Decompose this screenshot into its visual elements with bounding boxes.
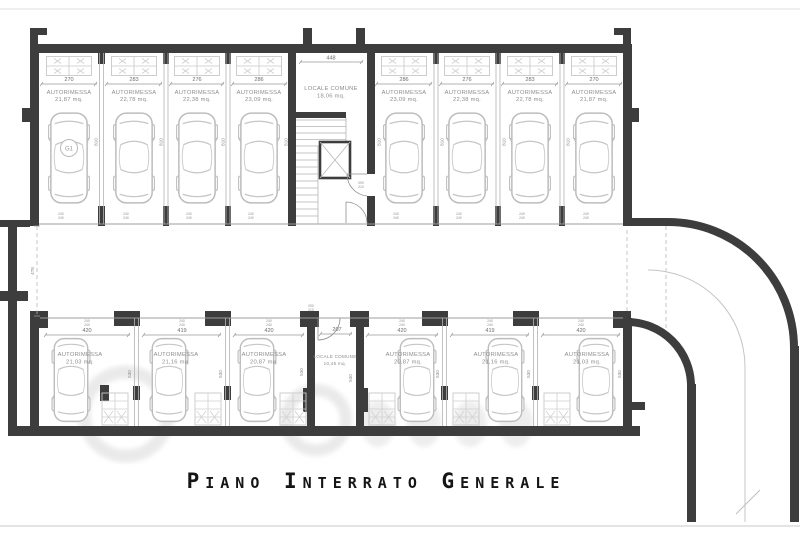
room-area: 18,06 mq.: [317, 94, 345, 100]
storage-rack-icon: [508, 57, 553, 76]
stall-depth-dim: 530: [299, 368, 304, 376]
stall-depth-dim: 530: [127, 370, 132, 378]
corridor-dim: 478: [30, 226, 40, 316]
stall-label: AUTORIMESSA: [58, 352, 103, 358]
car-icon: [573, 113, 615, 203]
stall-area: 23,09 mq.: [245, 97, 273, 103]
stall-label: AUTORIMESSA: [508, 90, 553, 96]
stall-area: 22,78 mq.: [516, 97, 544, 103]
stall-width-dim: 270: [64, 77, 73, 83]
stall-width-dim: 276: [462, 77, 471, 83]
stall-depth-dim: 530: [526, 370, 531, 378]
floorplan-page: 478 270 AUTORIMESSA 21,87 mq. G1 810 240…: [0, 0, 800, 535]
car-icon: [48, 113, 90, 203]
storage-rack-icon: [47, 57, 92, 76]
stall-top-2: 283 AUTORIMESSA 22,78 mq. 810 240 240: [105, 57, 164, 221]
stall-depth-dim: 810: [502, 138, 507, 146]
room-width-dim: 448: [326, 56, 335, 62]
ramp-slope-tick: [736, 490, 760, 514]
stall-width-dim: 419: [485, 328, 494, 334]
stall-depth-dim: 530: [218, 370, 223, 378]
stall-area: 21,87 mq.: [55, 97, 83, 103]
stall-top-3: 276 AUTORIMESSA 22,38 mq. 810 240 240: [169, 57, 226, 221]
page-frame: [0, 9, 800, 526]
storage-rack-icon: [237, 57, 282, 76]
stall-top-7: 283 AUTORIMESSA 22,78 mq. 810 240 240: [501, 57, 558, 221]
stall-width-dim: 420: [576, 328, 585, 334]
stall-depth-dim: 530: [617, 370, 622, 378]
stall-label: AUTORIMESSA: [572, 90, 617, 96]
stall-width-dim: 420: [82, 328, 91, 334]
opening-dim: 240: [123, 216, 129, 220]
opening-dim: 240: [179, 323, 185, 327]
stall-width-dim: 419: [177, 328, 186, 334]
stall-label: AUTORIMESSA: [237, 90, 282, 96]
room-width-dim: 207: [332, 327, 341, 333]
stall-label: AUTORIMESSA: [565, 352, 610, 358]
locale-comune-top: 448 LOCALE COMUNE 18,06 mq.: [299, 56, 363, 100]
stall-bottom-3: 420 AUTORIMESSA 20,87 mq. 530 240 240: [233, 319, 306, 425]
car-icon: [446, 113, 488, 203]
stall-width-dim: 420: [264, 328, 273, 334]
elevator: [320, 142, 350, 178]
room-label: LOCALE COMUNE: [304, 86, 358, 92]
stall-label: AUTORIMESSA: [474, 352, 519, 358]
stall-width-dim: 420: [397, 328, 406, 334]
stall-depth-dim: 530: [435, 370, 440, 378]
stall-depth-dim: 810: [440, 138, 445, 146]
stall-area: 21,03 mq.: [66, 360, 94, 366]
stall-area: 21,16 mq.: [162, 360, 190, 366]
room-depth-dim: 530: [348, 374, 353, 382]
opening-dim: 240: [393, 216, 399, 220]
car-badge: G1: [65, 147, 74, 153]
opening-dim: 240: [578, 323, 584, 327]
stall-bottom-4: 420 AUTORIMESSA 20,87 mq. 530 240 240: [366, 319, 440, 425]
storage-rack-icon: [572, 57, 617, 76]
opening-dim: 240: [58, 216, 64, 220]
storage-rack-icon: [453, 393, 479, 425]
opening-dim: 240: [266, 323, 272, 327]
stall-area: 20,87 mq.: [250, 360, 278, 366]
car-icon: [238, 113, 280, 203]
stall-bottom-6: 420 AUTORIMESSA 21,03 mq. 530 240 240: [541, 319, 622, 425]
plan-title: Piano Interrato Generale: [0, 469, 752, 493]
stall-depth-dim: 810: [284, 138, 289, 146]
stall-area: 22,78 mq.: [120, 97, 148, 103]
stall-depth-dim: 810: [377, 138, 382, 146]
stall-top-6: 276 AUTORIMESSA 22,38 mq. 810 240 240: [439, 57, 494, 221]
stall-bottom-2: 419 AUTORIMESSA 21,16 mq. 530 240 240: [142, 319, 223, 425]
storage-rack-icon: [175, 57, 220, 76]
opening-dim: 240: [583, 216, 589, 220]
stall-area: 21,03 mq.: [573, 360, 601, 366]
stall-top-8: 270 AUTORIMESSA 21,87 mq. 810 240 240: [565, 57, 622, 221]
stall-area: 20,87 mq.: [394, 360, 422, 366]
car-icon: [113, 113, 155, 203]
opening-dim: 240: [186, 216, 192, 220]
stall-area: 21,16 mq.: [482, 360, 510, 366]
stall-label: AUTORIMESSA: [242, 352, 287, 358]
stall-label: AUTORIMESSA: [112, 90, 157, 96]
opening-dim: 240: [248, 216, 254, 220]
storage-rack-icon: [112, 57, 157, 76]
stall-top-1: 270 AUTORIMESSA 21,87 mq. G1 810 240 240: [40, 57, 99, 221]
opening-dim: 240: [487, 323, 493, 327]
stall-label: AUTORIMESSA: [386, 352, 431, 358]
floor-plan-drawing: 478 270 AUTORIMESSA 21,87 mq. G1 810 240…: [0, 0, 800, 535]
storage-rack-icon: [445, 57, 490, 76]
opening-dim: 240: [399, 323, 405, 327]
stall-top-4: 286 AUTORIMESSA 23,09 mq. 810 240 240: [231, 57, 289, 221]
door-height-dim: 210: [358, 185, 364, 189]
door-arc: [346, 202, 367, 223]
stall-area: 23,09 mq.: [390, 97, 418, 103]
opening-dim: 240: [456, 216, 462, 220]
stall-width-dim: 283: [525, 77, 534, 83]
stall-width-dim: 276: [192, 77, 201, 83]
stair-core: 090 210: [296, 118, 367, 224]
stall-depth-dim: 810: [94, 138, 99, 146]
storage-rack-icon: [382, 57, 427, 76]
opening-dim: 240: [519, 216, 525, 220]
stall-depth-dim: 810: [159, 138, 164, 146]
stall-bottom-5: 419 AUTORIMESSA 21,16 mq. 530 240 240: [450, 319, 531, 425]
stall-label: AUTORIMESSA: [47, 90, 92, 96]
stall-label: AUTORIMESSA: [445, 90, 490, 96]
opening-dim: 240: [84, 323, 90, 327]
stall-width-dim: 286: [399, 77, 408, 83]
room-label: LOCALE COMUNE: [313, 354, 356, 359]
door-height-dim: 210: [308, 308, 314, 312]
stall-area: 22,38 mq.: [183, 97, 211, 103]
stall-depth-dim: 810: [566, 138, 571, 146]
car-icon: [383, 113, 425, 203]
stall-depth-dim: 810: [221, 138, 226, 146]
stall-width-dim: 270: [589, 77, 598, 83]
car-icon: [509, 113, 551, 203]
stall-area: 21,87 mq.: [580, 97, 608, 103]
corridor-width-dim: 478: [30, 267, 35, 275]
storage-rack-icon: [369, 393, 395, 425]
stall-top-5: 286 AUTORIMESSA 23,09 mq. 810 240 240: [375, 57, 432, 221]
stall-width-dim: 283: [129, 77, 138, 83]
stall-width-dim: 286: [254, 77, 263, 83]
storage-rack-icon: [544, 393, 570, 425]
storage-rack-icon: [195, 393, 221, 425]
stall-label: AUTORIMESSA: [175, 90, 220, 96]
stall-label: AUTORIMESSA: [382, 90, 427, 96]
car-icon: [176, 113, 218, 203]
stall-area: 22,38 mq.: [453, 97, 481, 103]
room-area: 10,45 mq.: [324, 361, 347, 366]
stall-label: AUTORIMESSA: [154, 352, 199, 358]
